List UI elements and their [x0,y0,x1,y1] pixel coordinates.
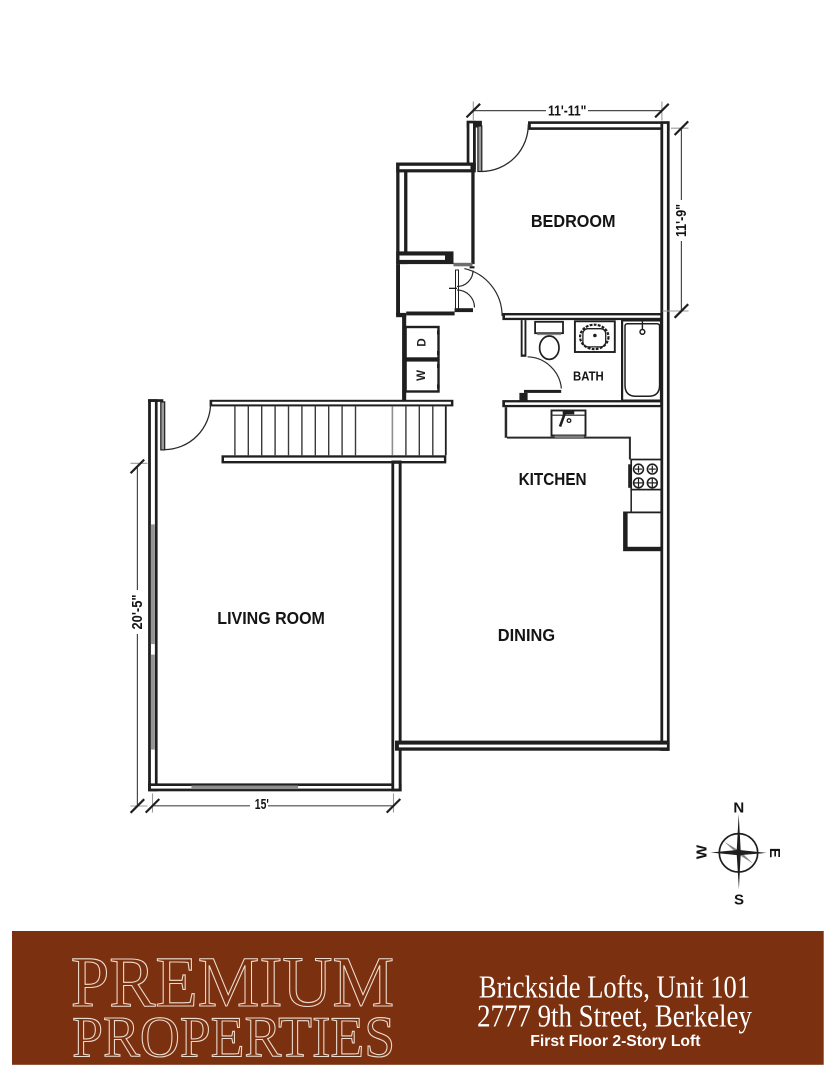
svg-text:W: W [694,844,711,859]
svg-text:S: S [734,892,744,909]
svg-text:15': 15' [255,797,269,813]
svg-text:11'-11": 11'-11" [548,104,586,120]
svg-text:N: N [733,799,744,816]
svg-text:KITCHEN: KITCHEN [519,469,587,489]
svg-text:BATH: BATH [573,370,604,384]
svg-text:20'-5": 20'-5" [130,595,146,630]
svg-text:E: E [766,848,783,858]
svg-text:2777 9th Street, Berkeley: 2777 9th Street, Berkeley [477,998,752,1034]
svg-text:BEDROOM: BEDROOM [531,211,616,231]
svg-text:W: W [416,370,428,381]
svg-text:DINING: DINING [498,625,555,645]
svg-text:LIVING ROOM: LIVING ROOM [217,608,325,628]
svg-text:PROPERTIES: PROPERTIES [72,1005,395,1070]
svg-text:11'-9": 11'-9" [674,204,690,237]
svg-text:First Floor 2-Story Loft: First Floor 2-Story Loft [530,1033,700,1050]
svg-text:D: D [417,338,429,346]
